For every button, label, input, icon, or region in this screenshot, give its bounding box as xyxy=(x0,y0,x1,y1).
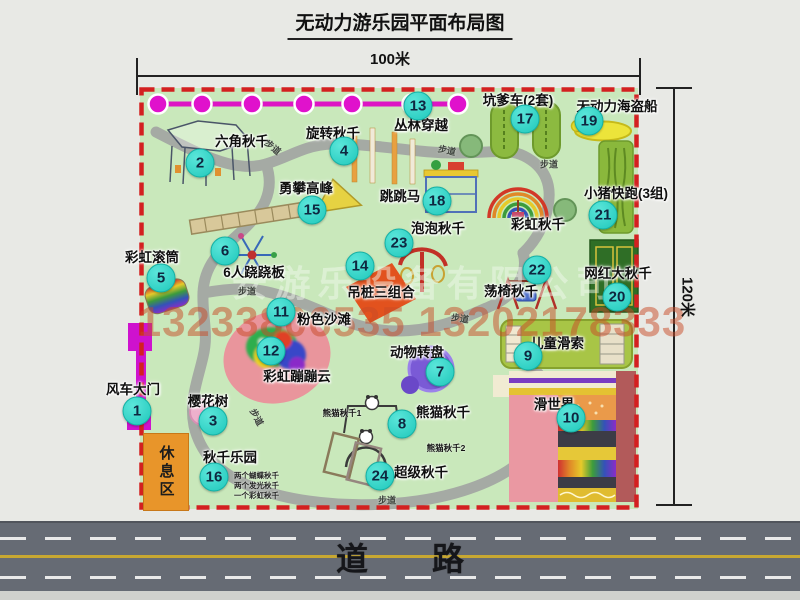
road-label: 道 路 xyxy=(336,534,464,580)
rest-area-box: 休息区 xyxy=(143,433,189,511)
page-title: 无动力游乐园平面布局图 xyxy=(287,8,512,40)
watermark-phone: 13233806535 13202178333 xyxy=(138,298,687,346)
rest-area-label: 休息区 xyxy=(156,445,177,499)
road-shoulder xyxy=(0,591,800,600)
screenshot-stage: 无动力游乐园平面布局图 xyxy=(0,0,800,600)
dimension-height-label: 120米 xyxy=(678,277,699,317)
dimension-width-label: 100米 xyxy=(370,48,410,69)
road: 道 路 xyxy=(0,521,800,591)
